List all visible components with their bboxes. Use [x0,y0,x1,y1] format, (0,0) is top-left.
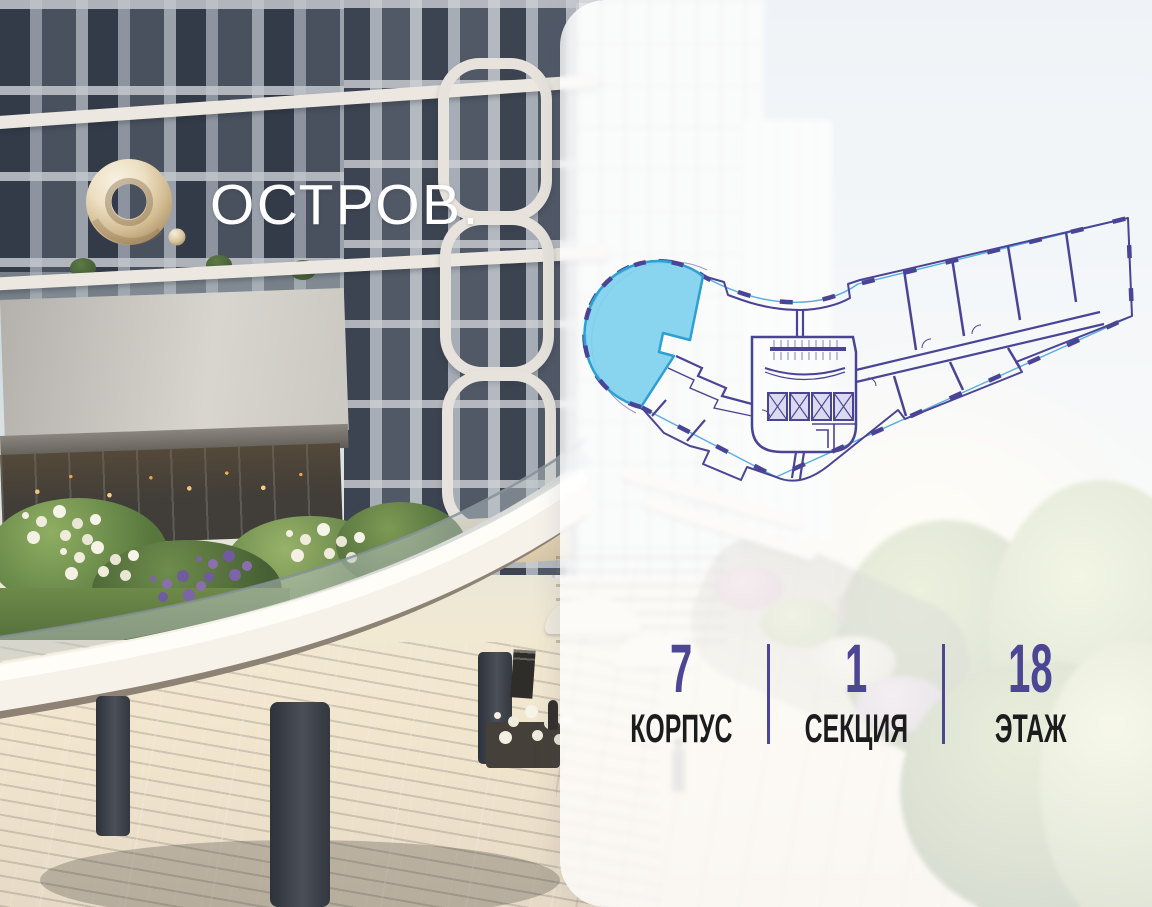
stat-sekciya-value: 1 [845,638,867,700]
white-flowers [494,712,501,719]
building-facade-left [0,0,344,302]
floorplan-selected-unit[interactable] [584,261,703,407]
walkway-column [96,696,130,836]
stat-sekciya-label: СЕКЦИЯ [804,712,907,746]
floorplan-outline [584,218,1132,481]
stat-etazh-value: 18 [1008,638,1053,700]
stat-sekciya: 1 СЕКЦИЯ [770,638,941,750]
white-flowers [22,512,29,519]
stat-etazh-label: ЭТАЖ [995,712,1067,746]
menu-board-sign [510,649,535,698]
floorplan [566,203,1152,495]
garden-grass [0,588,290,640]
stat-korpus-label: КОРПУС [631,712,733,746]
stat-etazh: 18 ЭТАЖ [945,638,1116,750]
floorplan-partitions [652,232,1104,479]
info-panel: 7 КОРПУС 1 СЕКЦИЯ 18 ЭТАЖ [560,0,1152,907]
page: 7 КОРПУС 1 СЕКЦИЯ 18 ЭТАЖ [0,0,1152,907]
stat-korpus: 7 КОРПУС [596,638,767,750]
elevator-shafts [768,393,853,420]
garden-bush [336,502,466,588]
brand-logo: ОСТРОВ. [86,158,481,250]
balcony-frame [442,370,556,534]
stat-korpus-value: 7 [671,638,693,700]
white-flowers [60,548,67,555]
brand-wordmark: ОСТРОВ. [210,177,481,234]
white-flowers [286,530,293,537]
pedestrian [548,700,558,730]
walkway-column [270,702,330,907]
purple-flowers [150,576,156,582]
selection-stats: 7 КОРПУС 1 СЕКЦИЯ 18 ЭТАЖ [596,638,1116,750]
floorplan-core [752,337,856,452]
purple-flowers [196,556,202,562]
podium-wall [0,288,349,442]
gold-ring-o-icon [86,158,186,250]
